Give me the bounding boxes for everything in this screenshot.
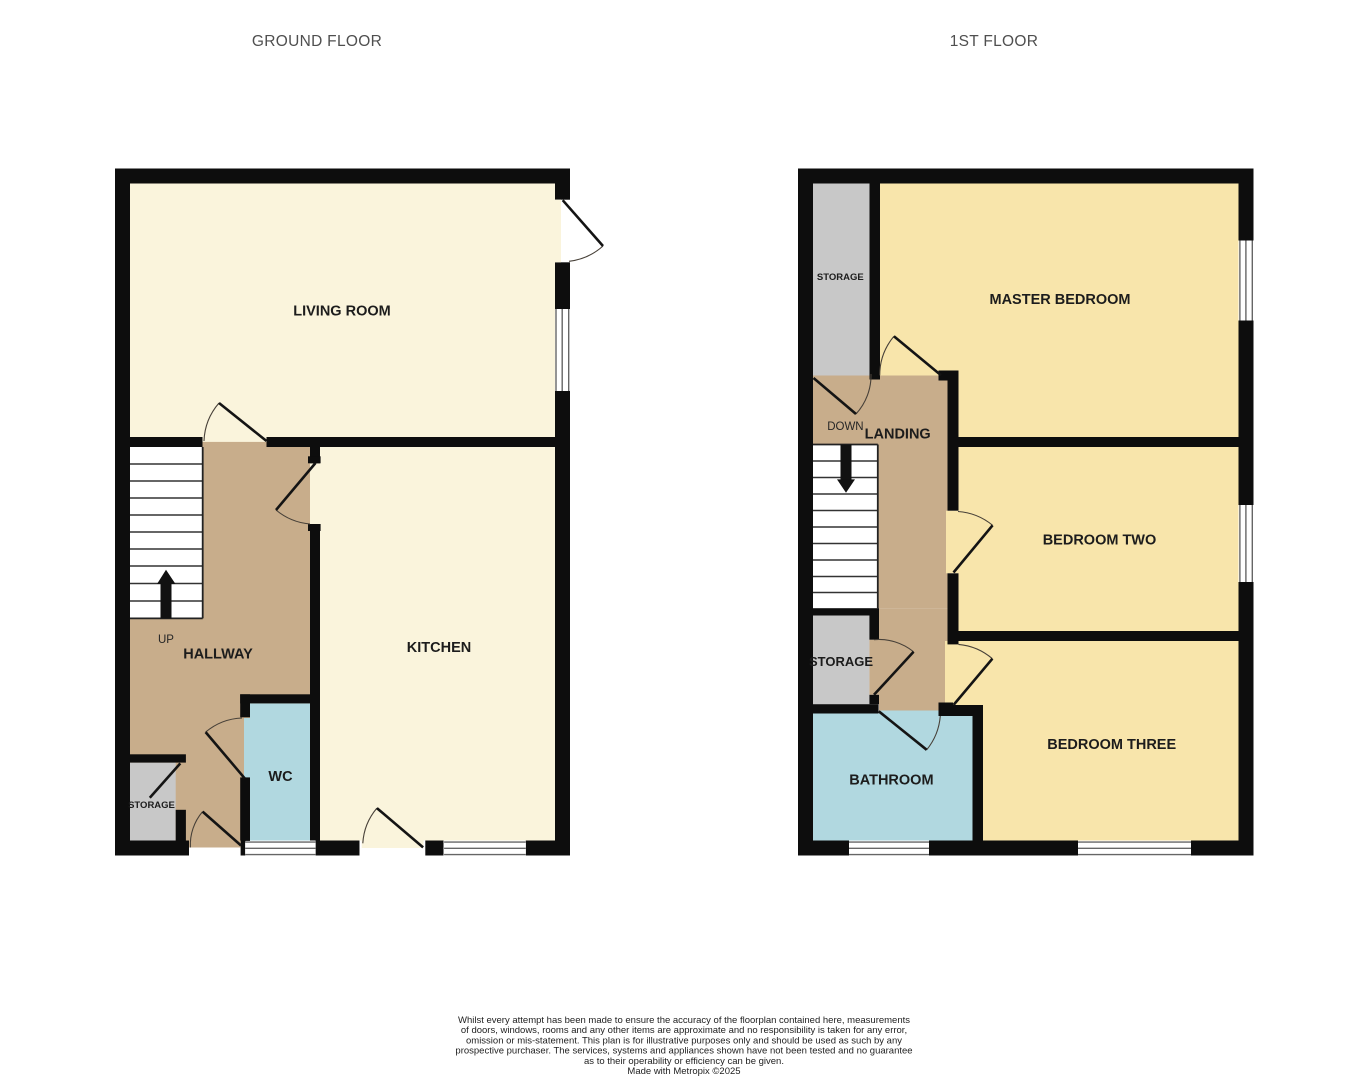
svg-text:BEDROOM TWO: BEDROOM TWO [1043, 533, 1157, 549]
svg-text:1ST FLOOR: 1ST FLOOR [950, 33, 1039, 50]
svg-text:HALLWAY: HALLWAY [183, 647, 253, 663]
svg-text:WC: WC [268, 769, 293, 785]
svg-text:MASTER BEDROOM: MASTER BEDROOM [990, 292, 1131, 308]
svg-text:LANDING: LANDING [865, 427, 931, 443]
svg-text:STORAGE: STORAGE [809, 654, 873, 669]
svg-text:STORAGE: STORAGE [128, 800, 175, 811]
svg-text:STORAGE: STORAGE [817, 272, 864, 283]
svg-text:GROUND FLOOR: GROUND FLOOR [252, 33, 382, 50]
svg-text:LIVING ROOM: LIVING ROOM [293, 304, 390, 320]
svg-text:BATHROOM: BATHROOM [849, 773, 933, 789]
svg-text:BEDROOM THREE: BEDROOM THREE [1047, 737, 1176, 753]
svg-text:Made with Metropix ©2025: Made with Metropix ©2025 [627, 1066, 740, 1077]
svg-text:UP: UP [158, 634, 174, 646]
svg-text:DOWN: DOWN [827, 421, 863, 433]
svg-text:KITCHEN: KITCHEN [407, 640, 471, 656]
